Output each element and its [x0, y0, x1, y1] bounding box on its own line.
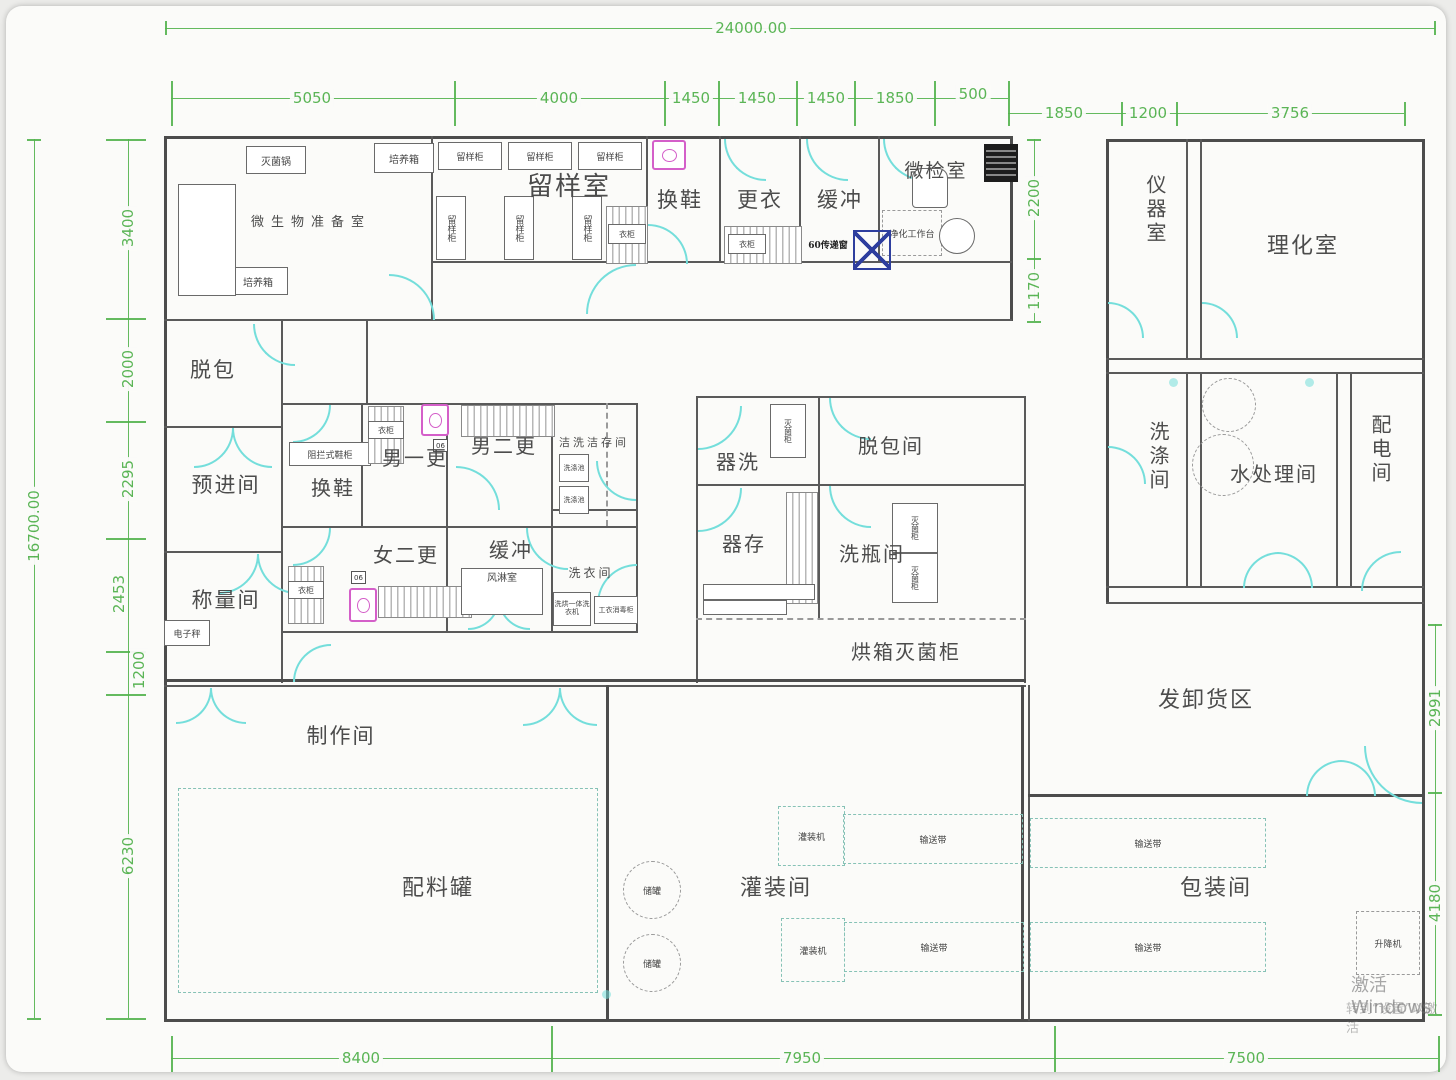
dim-top2-3: 3756 [1268, 104, 1312, 122]
wall [1106, 372, 1424, 374]
room-label-micro-test: 微检室 [904, 156, 967, 183]
equipment-label: 留样柜 [513, 215, 526, 242]
door-arc-icon [232, 428, 272, 468]
dim-tick [1027, 258, 1041, 260]
door-tag-label: 06 [354, 574, 363, 582]
dim-right-upper-2: 1170 [1025, 269, 1043, 313]
dim-tick [1121, 102, 1123, 126]
room-label-pre-entry: 预进间 [192, 469, 261, 499]
floor-plan-canvas: 24000.00 5050 4000 1450 1450 1450 1850 5… [0, 0, 1456, 1080]
dim-tick [1027, 321, 1041, 323]
sink-icon [652, 140, 686, 170]
equipment-label: 输送带 [920, 941, 947, 954]
wall [1350, 372, 1352, 586]
filling-machine: 灌装机 [781, 918, 845, 982]
equipment-label: 留样柜 [581, 215, 594, 242]
dim-tick [1428, 624, 1442, 626]
equipment-label: 升降机 [1374, 937, 1401, 950]
door-tag: 06 [351, 571, 366, 584]
door-arc-icon [456, 466, 500, 510]
dim-line [165, 28, 1435, 29]
dim-left-overall: 16700.00 [25, 487, 43, 565]
room-label-buffer-top: 缓冲 [817, 184, 863, 214]
door-arc-icon [698, 406, 742, 450]
dim-tick [796, 81, 798, 126]
wall [164, 551, 281, 553]
water-tank-icon [1202, 378, 1256, 432]
dim-left-2: 2000 [119, 347, 137, 391]
door-arc-icon [1108, 302, 1144, 338]
dim-tick [551, 1026, 553, 1072]
lifter: 升降机 [1356, 911, 1420, 975]
wall [431, 261, 1012, 263]
room-label-weighing: 称量间 [192, 584, 261, 614]
dim-top-3: 1450 [669, 89, 713, 107]
room-label-physchem-lab: 理化室 [1267, 228, 1339, 260]
drawing-paper: 24000.00 5050 4000 1450 1450 1450 1850 5… [6, 6, 1446, 1072]
equipment-label: 留样柜 [526, 150, 553, 163]
door-arc-icon [806, 139, 848, 181]
door-arc-icon [1108, 446, 1146, 484]
dim-right-lower-2: 4180 [1426, 881, 1444, 925]
wall [1106, 358, 1424, 360]
dim-top-6: 1850 [873, 89, 917, 107]
equipment-label: 培养箱 [243, 274, 273, 289]
wall [1106, 139, 1109, 602]
door-arc-icon [829, 486, 871, 528]
equipment-label: 电子秤 [173, 627, 200, 640]
room-label-depack-room: 脱包间 [858, 430, 924, 459]
room-label-men-first: 男一更 [382, 442, 448, 471]
room-label-instrument-room: 仪器室 [1141, 174, 1170, 246]
equipment-label: 灭菌柜 [783, 419, 794, 443]
equipment-label: 留样柜 [596, 150, 623, 163]
dim-top2-2: 1200 [1126, 104, 1170, 122]
transfer-window-icon [853, 230, 891, 270]
equipment-label: 灭菌柜 [910, 566, 921, 590]
dim-left-6: 6230 [119, 834, 137, 878]
room-label-microbio-prep: 微生物准备室 [251, 211, 371, 230]
wall [164, 1019, 1425, 1022]
door-arc-icon [253, 324, 295, 366]
sample-cabinet: 留样柜 [438, 142, 502, 170]
dim-tick [106, 139, 146, 141]
dim-bottom-2: 7950 [780, 1049, 824, 1067]
equipment-label: 衣柜 [619, 229, 635, 240]
wardrobe: 衣柜 [288, 581, 324, 599]
room-label-power-room: 配电间 [1366, 414, 1395, 486]
stool-icon [939, 218, 975, 254]
equipment-label: 储罐 [643, 957, 661, 970]
equipment-label: 灌装机 [799, 944, 826, 957]
door-arc-icon [176, 688, 212, 724]
dim-top-2: 4000 [537, 89, 581, 107]
equipment-label: 衣柜 [298, 585, 314, 596]
door-arc-icon [293, 528, 331, 566]
dim-tick [106, 694, 146, 696]
wall [606, 685, 609, 1021]
room-label-loading-area: 发卸货区 [1158, 682, 1254, 714]
conveyor: 输送带 [843, 814, 1023, 864]
door-marker-icon [602, 990, 611, 999]
wall [1336, 372, 1338, 586]
equipment-label: 净化工作台 [889, 227, 934, 240]
door-arc-icon [210, 688, 246, 724]
dim-tick [1176, 102, 1178, 126]
door-arc-icon [1243, 552, 1279, 588]
shelf [703, 600, 787, 615]
dim-tick [664, 81, 666, 126]
clean-bench: 净化工作台 [882, 210, 942, 256]
dim-left-3: 2295 [119, 457, 137, 501]
door-arc-icon [596, 461, 636, 501]
room-label-depack: 脱包 [190, 354, 236, 384]
room-label: 风淋室 [487, 569, 517, 584]
dim-left-4: 2453 [110, 572, 128, 616]
door-arc-icon [1306, 760, 1342, 796]
dim-tick [454, 81, 456, 126]
sample-cabinet: 留样柜 [436, 196, 466, 260]
wall [164, 685, 1026, 687]
wall [281, 526, 638, 528]
dim-left-5: 1200 [130, 648, 148, 692]
room-label-shoe-change-mid: 换鞋 [311, 472, 355, 501]
dim-tick [934, 81, 936, 126]
conveyor: 输送带 [1030, 818, 1266, 868]
equipment-label: 灭菌锅 [261, 153, 291, 168]
dim-bottom-1: 8400 [339, 1049, 383, 1067]
room-label-women-second: 女二更 [373, 539, 439, 568]
dim-right-lower-1: 2991 [1426, 686, 1444, 730]
dim-left-1: 3400 [119, 206, 137, 250]
wash-sink: 洗涤池 [559, 486, 589, 514]
dim-tick [171, 1036, 173, 1072]
dim-top-4: 1450 [735, 89, 779, 107]
equipment-label: 培养箱 [389, 151, 419, 166]
door-arc-icon [1361, 551, 1401, 591]
door-arc-icon [293, 405, 331, 443]
room-label-sample-room: 留样室 [527, 166, 611, 203]
equipment-label: 输送带 [919, 833, 946, 846]
equipment-label: 灭菌柜 [910, 516, 921, 540]
equipment-label: 输送带 [1134, 837, 1161, 850]
dim-tick [1027, 139, 1041, 141]
washer-dryer: 洗烘一体洗衣机 [553, 592, 591, 626]
wardrobe: 衣柜 [728, 234, 766, 254]
room-label-clothes-change: 更衣 [737, 184, 783, 214]
door-arc-icon [389, 274, 435, 320]
wall [164, 319, 1012, 321]
door-arc-icon [1277, 552, 1313, 588]
sterilize-cabinet: 灭菌柜 [770, 404, 806, 458]
equipment-label: 灌装机 [798, 830, 825, 843]
equipment-label: 留样柜 [445, 215, 458, 242]
storage-tank: 储罐 [623, 934, 681, 992]
dim-top-5: 1450 [804, 89, 848, 107]
windows-activation-watermark-sub: 转到“设置”以激活 [1346, 998, 1446, 1036]
equipment-label: 输送带 [1134, 941, 1161, 954]
door-arc-icon [586, 264, 636, 314]
room-label-vessel-wash: 器洗 [716, 446, 760, 475]
dim-tick [1434, 21, 1436, 35]
door-arc-icon [523, 688, 561, 726]
dim-tick [1404, 102, 1406, 126]
wall [164, 136, 167, 1021]
wall [281, 319, 283, 683]
incubator: 培养箱 [374, 143, 434, 173]
door-arc-icon [724, 139, 766, 181]
equipment-label: 洗涤池 [564, 463, 585, 473]
wall [1106, 139, 1424, 142]
dim-tick [854, 81, 856, 126]
dim-tick [27, 139, 41, 141]
door-arc-icon [698, 488, 742, 532]
room-label-oven-sterilizer: 烘箱灭菌柜 [851, 636, 961, 665]
equipment-label: 洗烘一体洗衣机 [554, 601, 590, 616]
wall [1024, 396, 1026, 683]
conveyor: 输送带 [844, 922, 1024, 972]
door-arc-icon [194, 428, 234, 468]
wardrobe: 衣柜 [368, 421, 404, 439]
equipment-label: 储罐 [643, 884, 661, 897]
equipment-label: 留样柜 [456, 150, 483, 163]
wall [1186, 372, 1188, 586]
room-label-shoe-change-top: 换鞋 [657, 184, 703, 214]
room-label-buffer-mid: 缓冲 [489, 534, 533, 563]
dim-tick [27, 1018, 41, 1020]
door-marker-icon [1305, 378, 1314, 387]
sink-icon [421, 404, 449, 436]
room-label-mixing-tanks: 配料罐 [402, 870, 474, 902]
dim-tick [1008, 81, 1010, 126]
dim-tick [106, 318, 146, 320]
room-label-laundry: 洗衣间 [568, 564, 613, 581]
dim-line [128, 139, 129, 1018]
dim-tick [106, 538, 146, 540]
mixing-tank-area [178, 788, 598, 993]
uniform-cabinet: 工衣消毒柜 [594, 596, 638, 624]
conveyor: 输送带 [1030, 922, 1266, 972]
air-shower-box: 风淋室 [461, 568, 543, 615]
door-arc-icon [648, 224, 688, 264]
dim-bottom-3: 7500 [1224, 1049, 1268, 1067]
room-label-water-treatment: 水处理间 [1230, 458, 1318, 487]
wash-sink: 洗涤池 [559, 454, 589, 482]
room-label-washing-room: 洗涤间 [1144, 421, 1173, 493]
dim-tick [171, 81, 173, 126]
dim-line [34, 139, 35, 1018]
equipment-label: 洗涤池 [564, 495, 585, 505]
room-label-production: 制作间 [307, 720, 376, 750]
dim-tick [1054, 1026, 1056, 1072]
equipment-label: 工衣消毒柜 [599, 605, 634, 615]
wall [281, 631, 638, 633]
door-arc-icon [293, 644, 331, 682]
room-label-filling-room: 灌装间 [740, 870, 812, 902]
wall [1106, 602, 1424, 604]
shoe-cabinet: 阻拦式鞋柜 [289, 442, 371, 466]
filling-machine: 灌装机 [778, 806, 845, 866]
hanger-rack [378, 586, 472, 618]
sample-cabinet: 留样柜 [572, 196, 602, 260]
equipment-label: 衣柜 [739, 239, 755, 250]
room-label-clean-storage: 洁洗洁存间 [559, 434, 629, 450]
dim-top-1: 5050 [290, 89, 334, 107]
incubator: 培养箱 [228, 267, 288, 295]
storage-tank: 储罐 [623, 861, 681, 919]
dim-tick [1428, 792, 1442, 794]
zone-dashed-line [696, 618, 1026, 620]
wall [1186, 139, 1188, 358]
dim-tick [1438, 1036, 1440, 1072]
dim-right-upper-1: 2200 [1025, 176, 1043, 220]
air-unit-icon [984, 144, 1018, 182]
door-arc-icon [559, 688, 597, 726]
transfer-window-label: 60传递窗 [808, 238, 848, 251]
equipment-label: 衣柜 [378, 425, 394, 436]
equipment-label: 阻拦式鞋柜 [307, 448, 352, 461]
room-label-men-second: 男二更 [471, 430, 537, 459]
wall [818, 396, 820, 618]
electronic-scale: 电子秤 [164, 620, 210, 646]
dim-top-7: 500 [956, 85, 991, 103]
dim-top2-1: 1850 [1042, 104, 1086, 122]
dim-tick [165, 21, 167, 35]
dim-tick [718, 81, 720, 126]
dim-tick [106, 1018, 146, 1020]
sample-cabinet: 留样柜 [504, 196, 534, 260]
room-label-bottle-wash: 洗瓶间 [839, 538, 905, 567]
dim-top-overall: 24000.00 [712, 19, 790, 37]
wall [281, 403, 638, 405]
door-marker-icon [1169, 378, 1178, 387]
wardrobe: 衣柜 [608, 224, 646, 244]
bench [178, 184, 236, 296]
sink-icon [349, 588, 377, 622]
wall [719, 136, 721, 263]
shelf [703, 584, 815, 600]
wall [1422, 139, 1425, 1019]
dim-tick [106, 421, 146, 423]
room-label-vessel-store: 器存 [722, 528, 766, 557]
sterilizer-pot: 灭菌锅 [246, 146, 306, 174]
room-label-packing-room: 包装间 [1180, 870, 1252, 902]
door-arc-icon [1202, 302, 1238, 338]
dim-line [1435, 624, 1436, 1014]
wall [366, 319, 368, 403]
